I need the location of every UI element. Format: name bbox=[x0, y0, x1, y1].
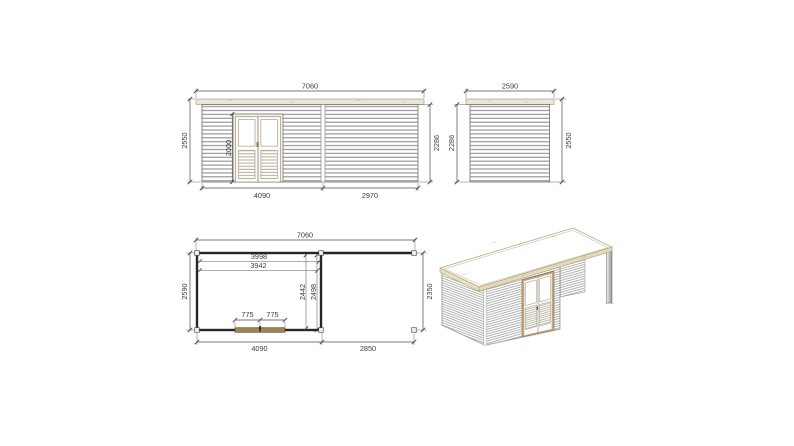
door-handle bbox=[257, 142, 259, 147]
dim-front-total-width: 7060 bbox=[194, 82, 426, 99]
dim-label: 2000 bbox=[224, 140, 233, 156]
plan-door-handle bbox=[259, 326, 261, 329]
plan-double-door bbox=[235, 326, 285, 332]
perspective-double-door bbox=[522, 271, 554, 337]
door-glass-right bbox=[540, 276, 551, 302]
canopy-post bbox=[605, 249, 614, 303]
door-louver-right bbox=[261, 151, 277, 179]
door-glass-left bbox=[239, 120, 255, 147]
dim-label: 2550 bbox=[180, 132, 189, 148]
dim-side-height-wall: 2286 bbox=[447, 102, 469, 184]
door-louver-left bbox=[526, 305, 537, 330]
dim-plan-interior-depths: 2442 2498 bbox=[298, 253, 319, 332]
dim-label: 775 bbox=[266, 310, 278, 319]
dim-label: 2442 bbox=[298, 284, 307, 300]
dim-label: 775 bbox=[241, 310, 253, 319]
dim-label: 2590 bbox=[180, 283, 189, 299]
dim-side-height-total: 2550 bbox=[550, 97, 573, 184]
dim-front-height-wall: 2286 bbox=[419, 102, 441, 184]
dim-label: 3998 bbox=[251, 252, 267, 261]
dim-label: 4090 bbox=[254, 191, 270, 200]
dim-label: 7060 bbox=[302, 82, 318, 91]
dim-plan-depth-total: 2590 bbox=[180, 251, 195, 332]
front-roof-plank bbox=[196, 99, 424, 105]
floor-plan-view: 7060 3998 3942 bbox=[170, 230, 440, 362]
dim-plan-total-width: 7060 bbox=[194, 231, 417, 251]
dim-label: 7060 bbox=[297, 231, 313, 240]
door-louver-left bbox=[239, 151, 255, 179]
door-glass-left bbox=[526, 280, 537, 306]
door-handle bbox=[537, 307, 539, 310]
dim-label: 2498 bbox=[309, 284, 318, 300]
dim-label: 3942 bbox=[250, 261, 266, 270]
dim-front-sections: 4090 2970 bbox=[200, 183, 420, 200]
dim-label: 2850 bbox=[360, 344, 376, 353]
dim-label: 2590 bbox=[502, 82, 518, 91]
front-double-door bbox=[233, 114, 283, 182]
house-corner-board bbox=[484, 287, 487, 346]
dim-label: 2286 bbox=[432, 135, 441, 151]
door-glass-right bbox=[261, 120, 277, 147]
side-wall-slats bbox=[470, 105, 550, 183]
dim-side-width: 2590 bbox=[464, 82, 556, 99]
front-elevation-view: 7060 2550 2286 2000 bbox=[170, 80, 440, 208]
technical-drawing-canvas: 7060 2550 2286 2000 bbox=[0, 0, 794, 446]
side-elevation-view: 2590 2286 2550 bbox=[445, 80, 575, 208]
dim-label: 2286 bbox=[447, 135, 456, 151]
dim-label: 2550 bbox=[564, 132, 573, 148]
dim-label: 4090 bbox=[251, 344, 267, 353]
perspective-view bbox=[432, 223, 624, 371]
front-wall-divider bbox=[321, 105, 325, 183]
door-louver-right bbox=[540, 302, 551, 327]
dim-plan-interior-widths: 3998 3942 bbox=[197, 252, 321, 273]
dim-label: 2970 bbox=[362, 191, 378, 200]
dim-plan-door-leaves: 775 775 bbox=[233, 310, 287, 329]
dim-plan-bottom: 4090 2850 bbox=[195, 333, 416, 353]
side-roof-plank bbox=[466, 99, 554, 105]
dim-front-height-total: 2550 bbox=[180, 97, 201, 184]
